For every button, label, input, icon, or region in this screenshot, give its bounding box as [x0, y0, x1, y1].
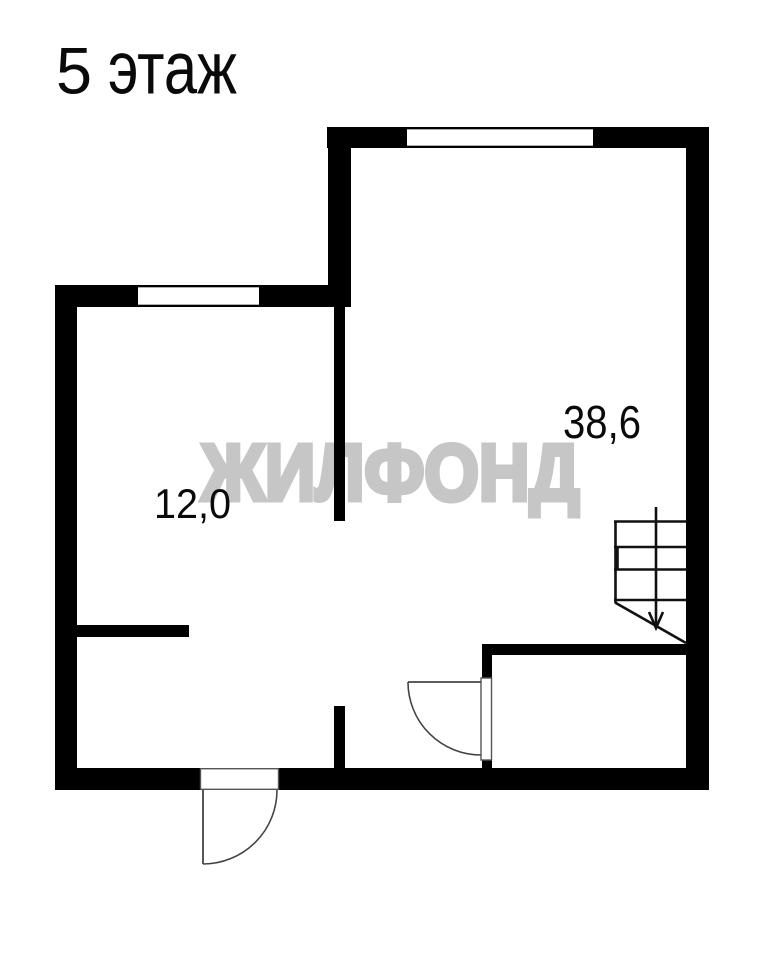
svg-text:38,6: 38,6 — [563, 396, 641, 448]
svg-text:12,0: 12,0 — [154, 480, 231, 527]
svg-text:ЖИЛФОНД: ЖИЛФОНД — [201, 428, 580, 517]
svg-text:этаж: этаж — [108, 27, 237, 110]
svg-text:5: 5 — [56, 34, 92, 108]
